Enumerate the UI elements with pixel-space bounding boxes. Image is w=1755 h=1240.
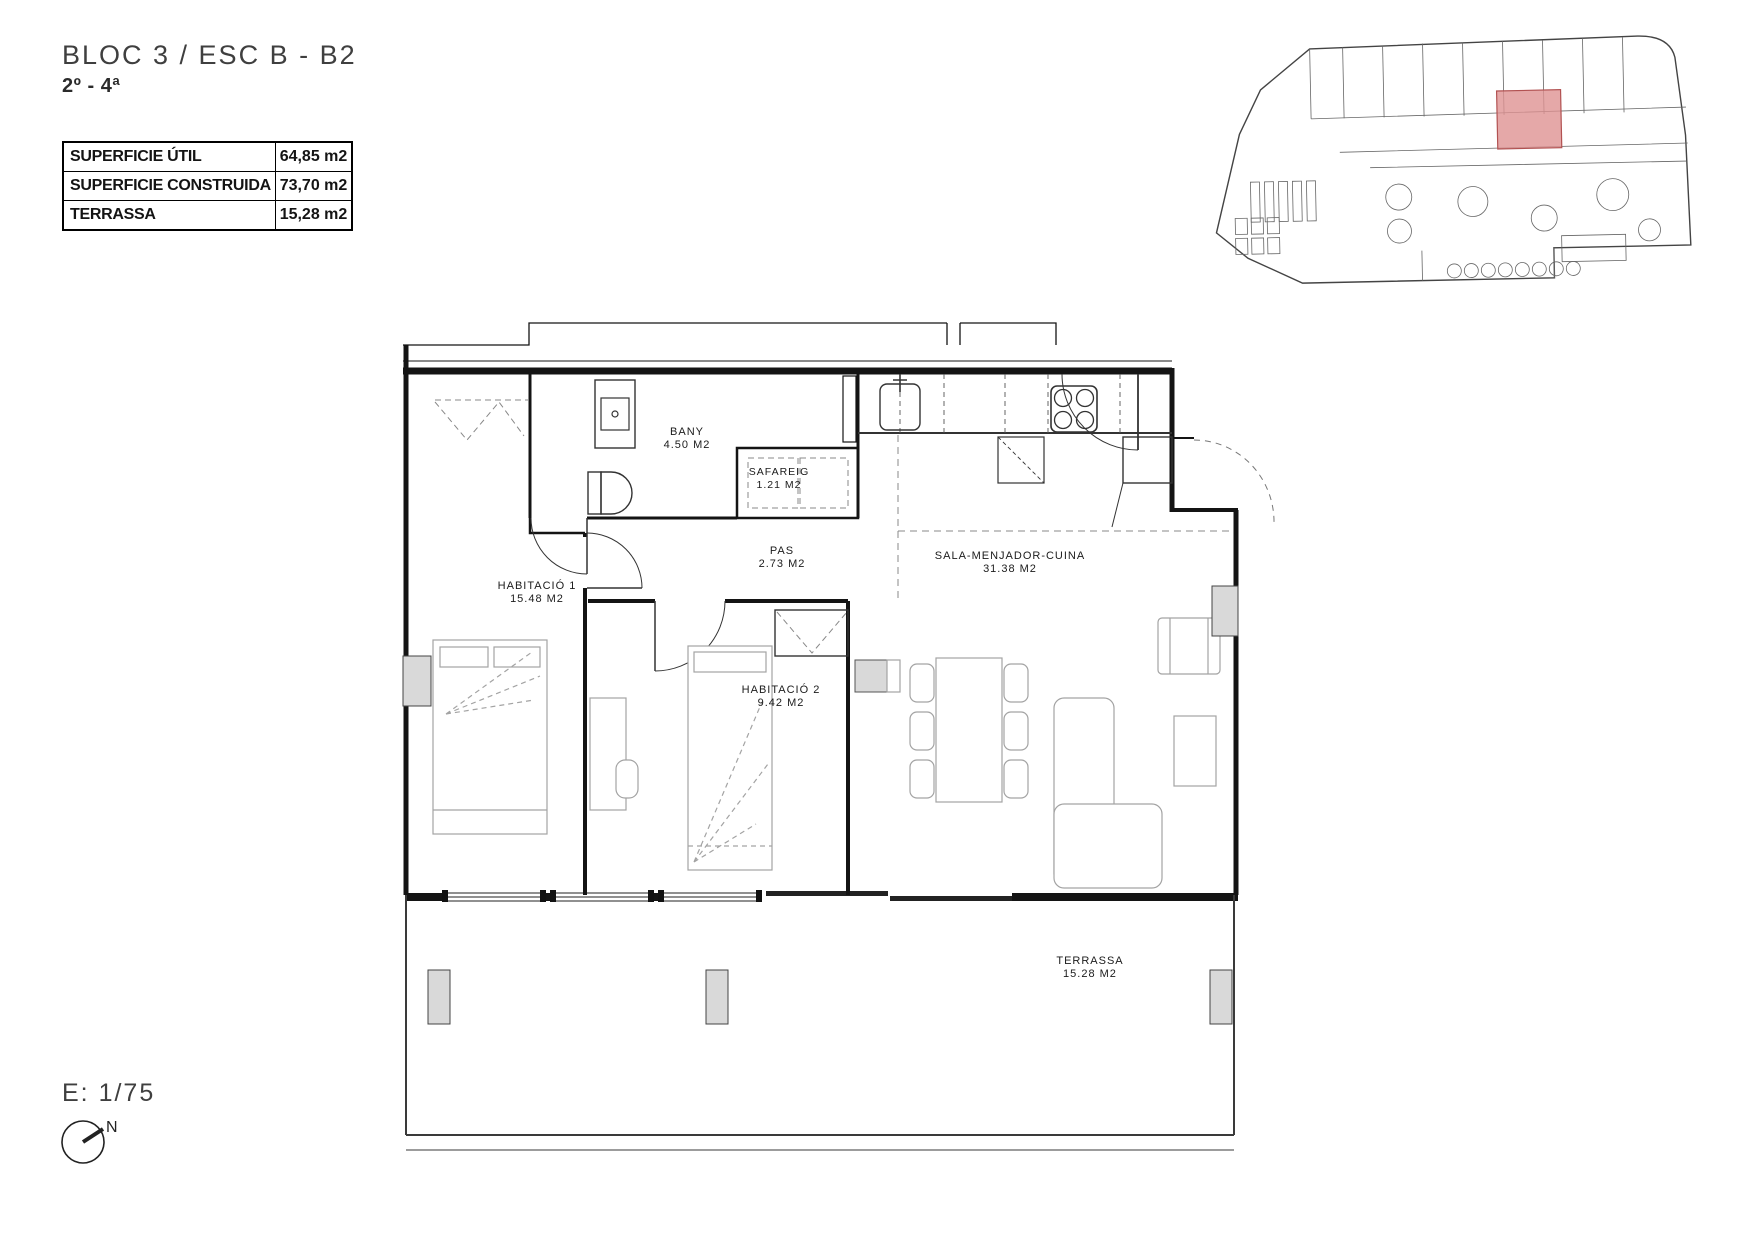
sofa-icon [1054, 698, 1162, 888]
toilet-icon [588, 472, 632, 514]
room-label-habitacio1: HABITACIÓ 1 15.48 M2 [498, 580, 577, 606]
surface-areas-table: SUPERFICIE ÚTIL 64,85 m2 SUPERFICIE CONS… [62, 141, 353, 231]
north-arrow-icon: N [62, 1119, 118, 1163]
bathroom-door-arc [531, 518, 587, 574]
room-label-safareig: SAFAREIG 1.21 M2 [749, 466, 810, 492]
side-table-icon [1174, 716, 1216, 786]
stove-icon [1051, 386, 1097, 432]
room-label-terrassa: TERRASSA 15.28 M2 [1056, 955, 1123, 981]
table-row: TERRASSA 15,28 m2 [64, 200, 351, 229]
room-label-sala: SALA-MENJADOR-CUINA 31.38 M2 [935, 550, 1085, 576]
fridge-icon [1112, 437, 1172, 527]
bed-double-icon [433, 640, 547, 834]
table-row-value: 15,28 m2 [276, 201, 351, 229]
room-label-pas: PAS 2.73 M2 [759, 545, 806, 571]
armchair-icon [1158, 618, 1220, 674]
table-row-value: 64,85 m2 [276, 143, 351, 171]
cabinet-icon [855, 660, 900, 692]
furniture [433, 618, 1220, 888]
zone-boundary-dashed [898, 435, 1232, 601]
dining-table-icon [910, 658, 1028, 802]
wardrobe2-icon [775, 610, 848, 656]
kitchen-counter [858, 374, 1172, 527]
desk-icon [590, 698, 638, 810]
bed-single-icon [688, 646, 772, 870]
minimap-unit-highlight [1497, 90, 1562, 149]
tall-cabinet-icon [998, 437, 1044, 483]
facade-windows [406, 889, 1238, 903]
washbasin-icon [595, 380, 635, 448]
bathroom-fixtures [588, 380, 635, 514]
room-label-bany: BANY 4.50 M2 [664, 426, 711, 452]
table-row-value: 73,70 m2 [276, 172, 351, 200]
overview-minimap [1213, 35, 1692, 285]
table-row-label: SUPERFICIE ÚTIL [64, 143, 276, 171]
table-row: SUPERFICIE CONSTRUIDA 73,70 m2 [64, 171, 351, 200]
page-subtitle: 2º - 4ª [62, 75, 357, 98]
table-row-label: SUPERFICIE CONSTRUIDA [64, 172, 276, 200]
table-row: SUPERFICIE ÚTIL 64,85 m2 [64, 143, 351, 171]
closets [435, 400, 528, 440]
terrace-outline [406, 895, 1234, 1150]
doc-header: BLOC 3 / ESC B - B2 2º - 4ª [62, 40, 357, 98]
page-title: BLOC 3 / ESC B - B2 [62, 40, 357, 71]
table-row-label: TERRASSA [64, 201, 276, 229]
north-label: N [106, 1119, 118, 1136]
scale-text: E: 1/75 [62, 1079, 155, 1107]
room-label-habitacio2: HABITACIÓ 2 9.42 M2 [742, 684, 821, 710]
bedroom1-door-arc [587, 533, 642, 588]
